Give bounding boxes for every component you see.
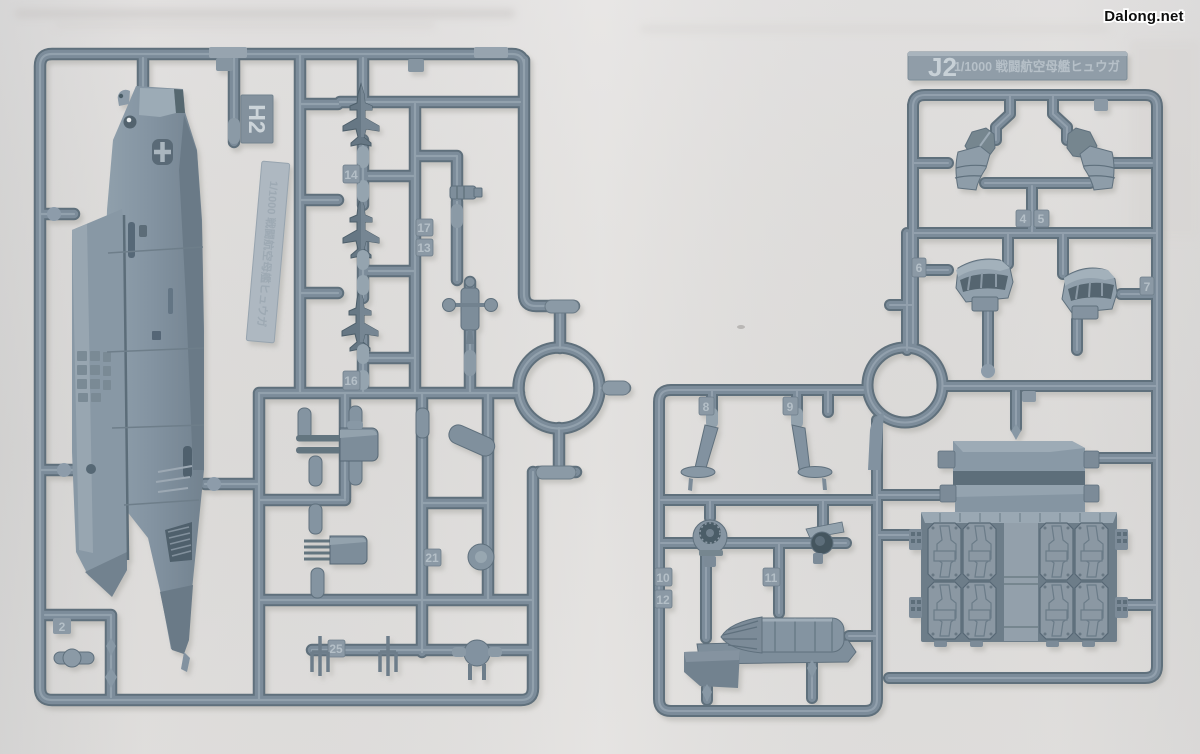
svg-text:J2: J2: [928, 52, 957, 82]
svg-text:2: 2: [59, 620, 66, 634]
svg-text:6: 6: [916, 261, 923, 275]
svg-text:H2: H2: [244, 104, 270, 133]
svg-text:8: 8: [703, 400, 710, 414]
svg-text:16: 16: [344, 374, 358, 388]
svg-text:Dalong.net: Dalong.net: [1104, 8, 1184, 25]
svg-text:17: 17: [417, 221, 431, 235]
svg-text:4: 4: [1020, 212, 1027, 226]
svg-text:14: 14: [344, 168, 358, 182]
svg-text:13: 13: [417, 241, 431, 255]
svg-text:11: 11: [765, 571, 778, 585]
svg-text:7: 7: [1144, 280, 1151, 294]
svg-text:5: 5: [1038, 212, 1045, 226]
svg-text:25: 25: [329, 642, 343, 656]
svg-text:10: 10: [656, 571, 670, 585]
svg-text:12: 12: [656, 593, 670, 607]
svg-text:1/1000 戦闘航空母艦ヒュウガ: 1/1000 戦闘航空母艦ヒュウガ: [954, 59, 1120, 74]
svg-text:9: 9: [787, 400, 794, 414]
svg-text:21: 21: [425, 551, 439, 565]
